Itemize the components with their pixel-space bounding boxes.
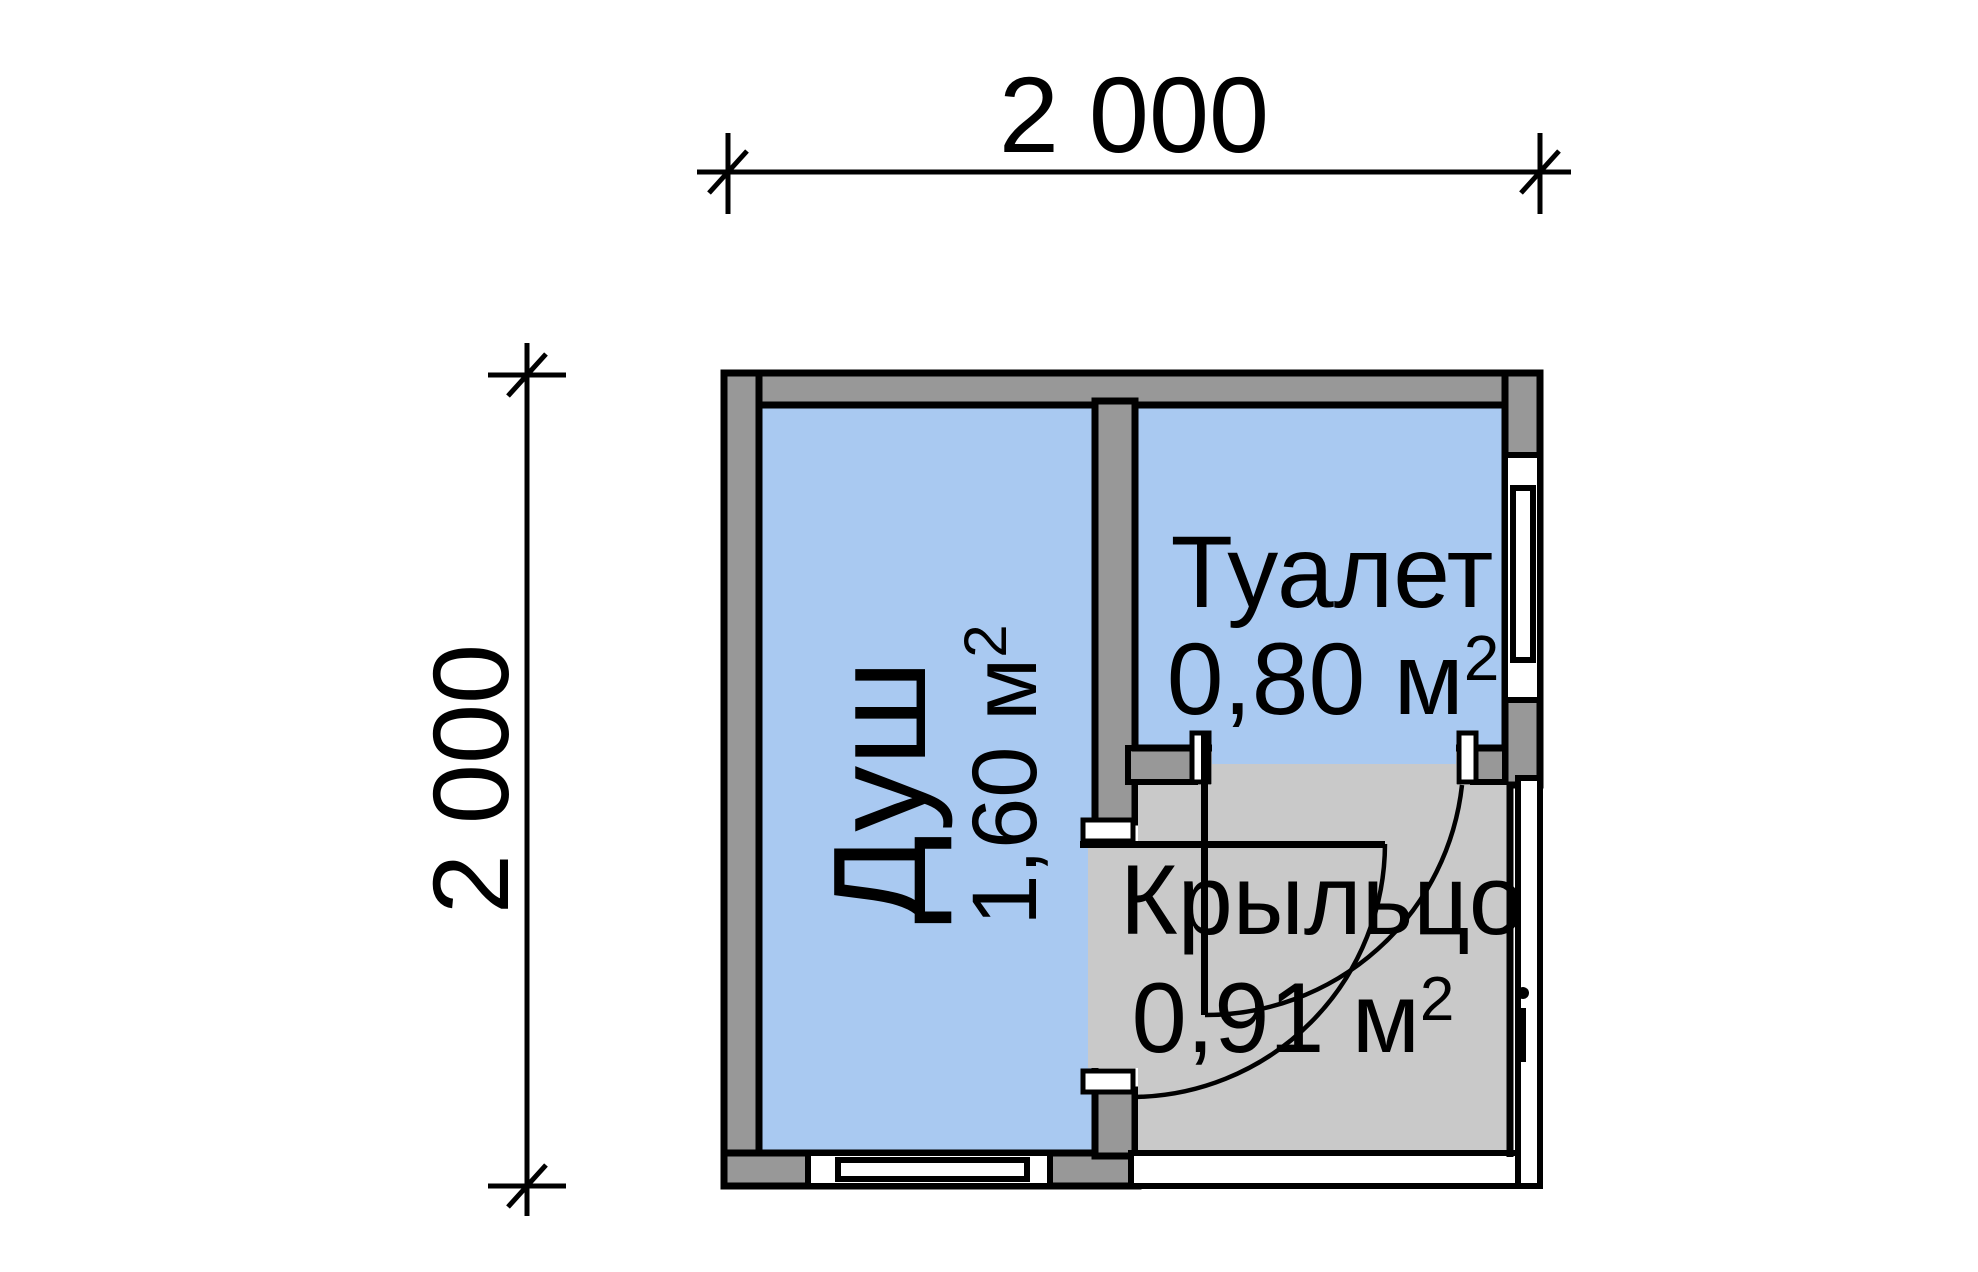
toilet-doorway-floor — [1212, 744, 1456, 766]
jamb-shower-top — [1083, 820, 1133, 841]
dimension-left: 2 000 — [410, 343, 566, 1216]
floor-plan-svg: 2 000 2 000 Душ 1,60 м2 Туалет 0,80 м2 К… — [0, 0, 1978, 1272]
room-porch-label: Крыльцо — [1120, 844, 1524, 955]
dimension-left-label: 2 000 — [410, 644, 531, 914]
jamb-toilet-right — [1459, 733, 1476, 782]
floor-plan-page: 2 000 2 000 Душ 1,60 м2 Туалет 0,80 м2 К… — [0, 0, 1978, 1272]
wall-interior-vertical-lower — [1095, 1090, 1135, 1156]
room-toilet-label: Туалет — [1171, 515, 1494, 629]
porch-step-right — [1518, 778, 1540, 1186]
porch-step-bottom — [1131, 1153, 1540, 1186]
jamb-shower-bottom — [1083, 1071, 1133, 1092]
dimension-top: 2 000 — [697, 54, 1571, 214]
window-bottom-glass — [838, 1160, 1027, 1179]
wall-left — [724, 373, 759, 1186]
entry-handle-dash — [1520, 1008, 1526, 1062]
room-porch-area: 0,91 м2 — [1132, 962, 1455, 1073]
dimension-top-label: 2 000 — [999, 54, 1269, 175]
window-right-glass — [1513, 488, 1533, 660]
room-toilet-area: 0,80 м2 — [1167, 622, 1500, 736]
wall-interior-horizontal-left — [1128, 748, 1195, 782]
room-shower-area: 1,60 м2 — [952, 624, 1056, 925]
room-shower-label: Душ — [806, 660, 953, 924]
entry-handle-dot — [1517, 987, 1529, 999]
